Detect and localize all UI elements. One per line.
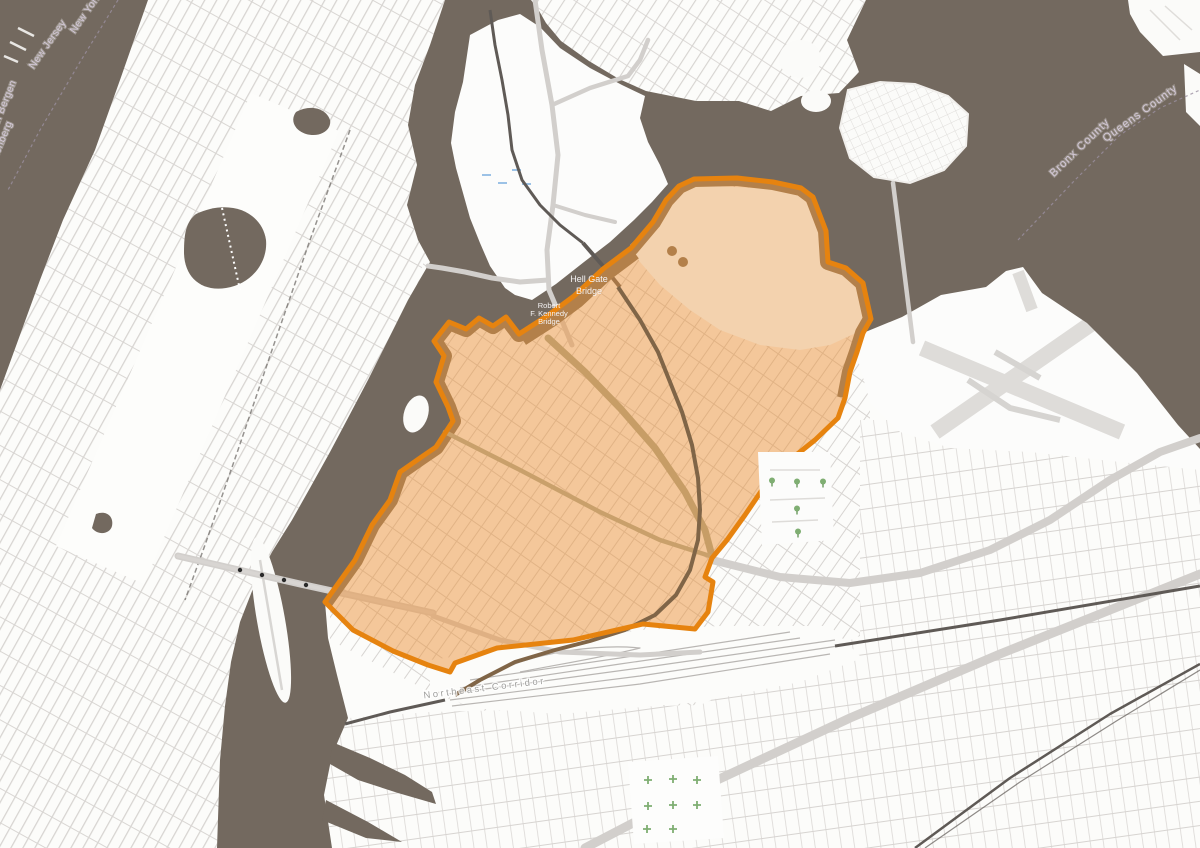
map-canvas[interactable]: New Jersey New York North Bergen Guttenb… [0,0,1200,848]
gas-tank [678,257,688,267]
svg-text:Bridge: Bridge [576,286,602,296]
park-with-trees [758,452,834,545]
gas-tank [667,246,677,256]
map-svg[interactable]: New Jersey New York North Bergen Guttenb… [0,0,1200,848]
north-brother-island [779,40,821,78]
svg-text:Hell Gate: Hell Gate [570,274,608,284]
svg-text:Bridge: Bridge [538,317,560,326]
cemetery [628,756,724,844]
south-brother-island [801,90,831,112]
